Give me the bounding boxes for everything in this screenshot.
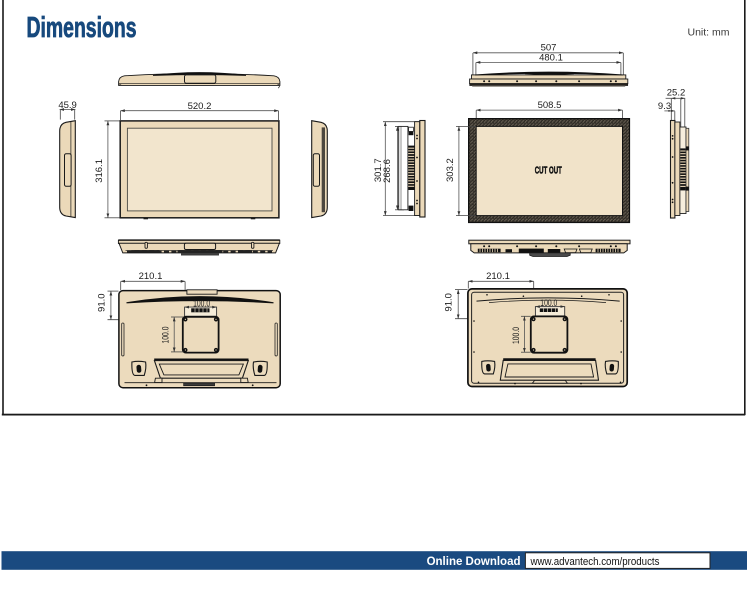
svg-text:www.advantech.com/products: www.advantech.com/products [530,556,660,568]
svg-text:303.2: 303.2 [445,158,456,182]
svg-text:508.5: 508.5 [538,100,562,111]
svg-text:91.0: 91.0 [96,293,107,312]
svg-text:316.1: 316.1 [94,159,105,183]
svg-text:480.1: 480.1 [539,52,563,63]
svg-text:268.6: 268.6 [382,159,393,183]
svg-text:CUT OUT: CUT OUT [535,166,562,177]
svg-text:Unit: mm: Unit: mm [688,27,730,39]
svg-text:210.1: 210.1 [486,271,510,282]
svg-text:520.2: 520.2 [188,101,212,112]
svg-text:100.0: 100.0 [540,298,557,309]
svg-text:91.0: 91.0 [444,293,455,312]
svg-text:100.0: 100.0 [193,298,210,309]
svg-text:Dimensions: Dimensions [27,12,137,44]
svg-text:100.0: 100.0 [511,327,522,344]
svg-text:25.2: 25.2 [667,88,686,99]
svg-text:100.0: 100.0 [160,327,171,344]
svg-text:Online Download: Online Download [427,556,521,568]
svg-text:210.1: 210.1 [139,271,163,282]
